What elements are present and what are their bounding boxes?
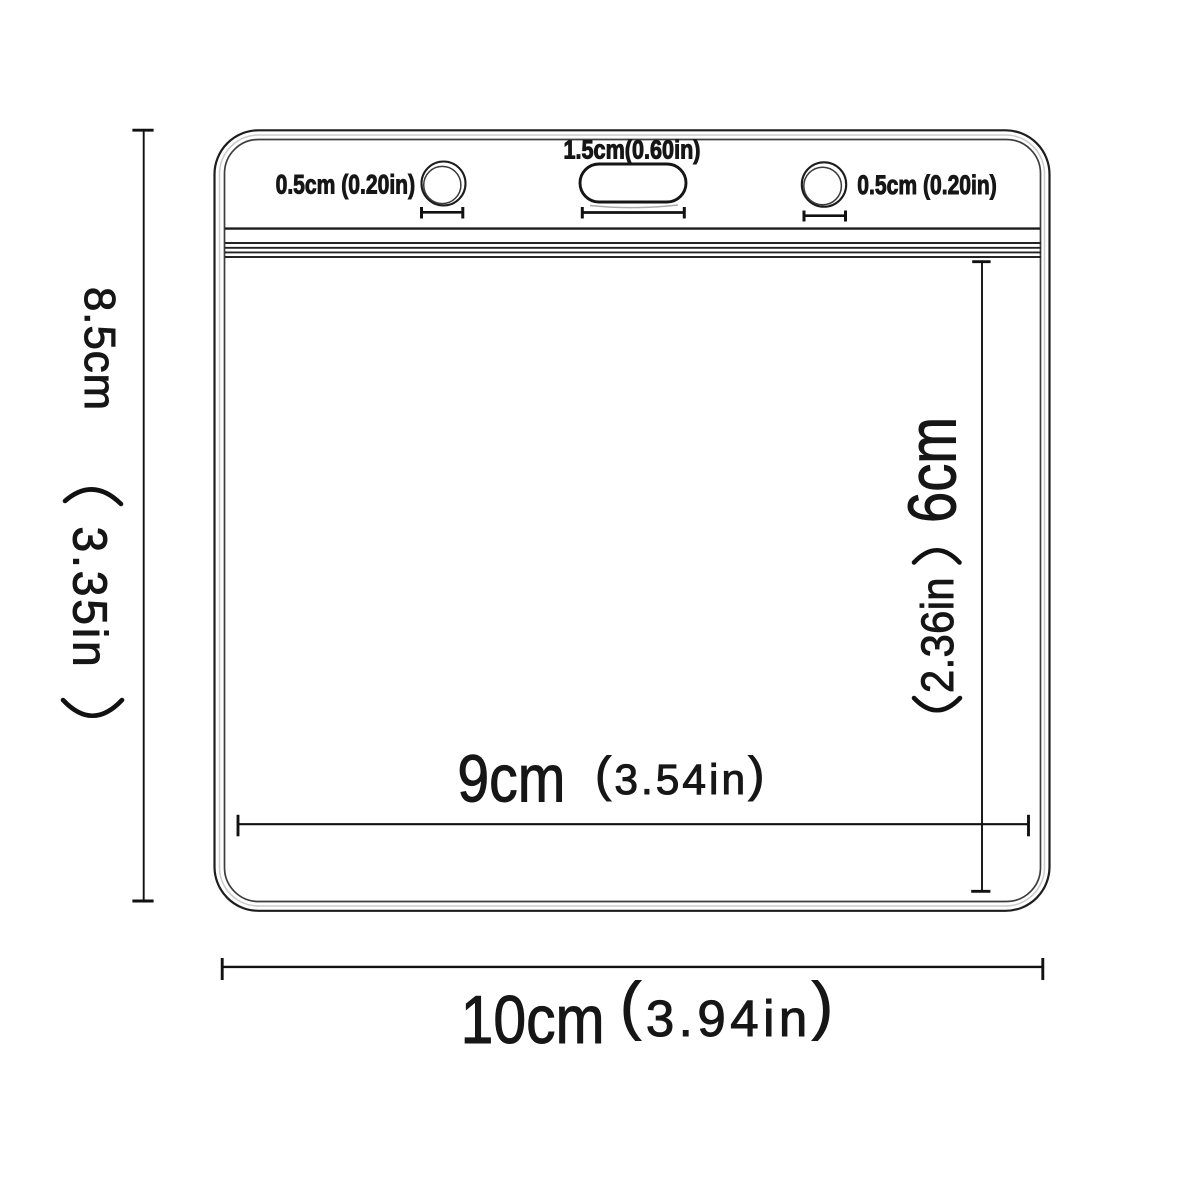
- svg-text:0.5cm (0.20in): 0.5cm (0.20in): [857, 170, 997, 200]
- svg-text:0.5cm (0.20in): 0.5cm (0.20in): [276, 169, 416, 199]
- svg-text:9cm: 9cm: [457, 742, 565, 817]
- svg-text:6cm: 6cm: [895, 417, 971, 523]
- svg-text:(3.54in): (3.54in): [595, 748, 767, 804]
- svg-text:3.35in: 3.35in: [63, 527, 116, 670]
- svg-text:10cm: 10cm: [461, 983, 605, 1058]
- svg-text:(3.94in): (3.94in): [620, 969, 838, 1047]
- svg-text:1.5cm(0.60in): 1.5cm(0.60in): [564, 137, 701, 165]
- svg-text:8.5cm: 8.5cm: [75, 287, 124, 411]
- svg-text:2.36in: 2.36in: [912, 577, 963, 693]
